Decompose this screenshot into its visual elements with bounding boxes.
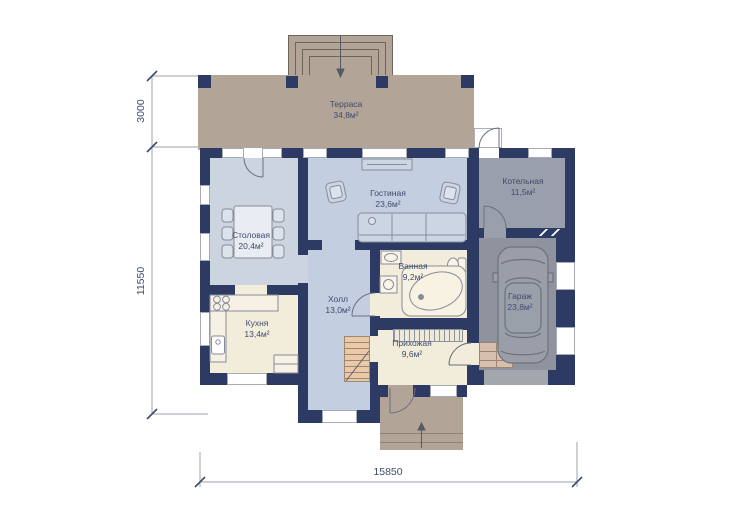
plan-linework bbox=[0, 0, 740, 523]
room-area: 9,2м² bbox=[378, 272, 448, 283]
dim-house-depth: 11550 bbox=[135, 261, 147, 301]
tv-stand-icon bbox=[362, 159, 412, 170]
room-name: Терраса bbox=[311, 99, 381, 110]
room-name: Кухня bbox=[222, 318, 292, 329]
room-name: Котельная bbox=[488, 176, 558, 187]
room-area: 9,6м² bbox=[377, 349, 447, 360]
boiler-ext-door-arc bbox=[479, 128, 499, 148]
floor-plan: Терраса 34,8м² Столовая 20,4м² Гостиная … bbox=[0, 0, 740, 523]
room-area: 13,0м² bbox=[303, 305, 373, 316]
room-name: Гостиная bbox=[353, 188, 423, 199]
room-label-bath: Ванная 9,2м² bbox=[378, 261, 448, 282]
room-label-living: Гостиная 23,6м² bbox=[353, 188, 423, 209]
room-label-boiler: Котельная 11,5м² bbox=[488, 176, 558, 197]
room-name: Столовая bbox=[216, 230, 286, 241]
room-name: Прихожая bbox=[377, 338, 447, 349]
room-area: 11,5м² bbox=[488, 187, 558, 198]
room-area: 23,8м² bbox=[485, 302, 555, 313]
room-label-terrace: Терраса 34,8м² bbox=[311, 99, 381, 120]
room-name: Холл bbox=[303, 294, 373, 305]
room-label-kitchen: Кухня 13,4м² bbox=[222, 318, 292, 339]
stair-cut-line bbox=[346, 351, 369, 381]
sofa-icon bbox=[358, 213, 466, 242]
dim-house-width: 15850 bbox=[368, 466, 408, 478]
room-name: Гараж bbox=[485, 291, 555, 302]
boiler-door-arc bbox=[484, 206, 506, 228]
room-area: 20,4м² bbox=[216, 241, 286, 252]
front-door-arc bbox=[390, 388, 415, 413]
terrace-door-arc bbox=[244, 158, 263, 177]
room-name: Ванная bbox=[378, 261, 448, 272]
room-label-hall: Холл 13,0м² bbox=[303, 294, 373, 315]
dim-terrace-depth: 3000 bbox=[135, 95, 147, 127]
entry-garage-door-arc bbox=[449, 343, 471, 365]
room-area: 13,4м² bbox=[222, 329, 292, 340]
room-area: 23,6м² bbox=[353, 199, 423, 210]
room-label-entry: Прихожая 9,6м² bbox=[377, 338, 447, 359]
room-label-dining: Столовая 20,4м² bbox=[216, 230, 286, 251]
room-label-garage: Гараж 23,8м² bbox=[485, 291, 555, 312]
room-area: 34,8м² bbox=[311, 110, 381, 121]
